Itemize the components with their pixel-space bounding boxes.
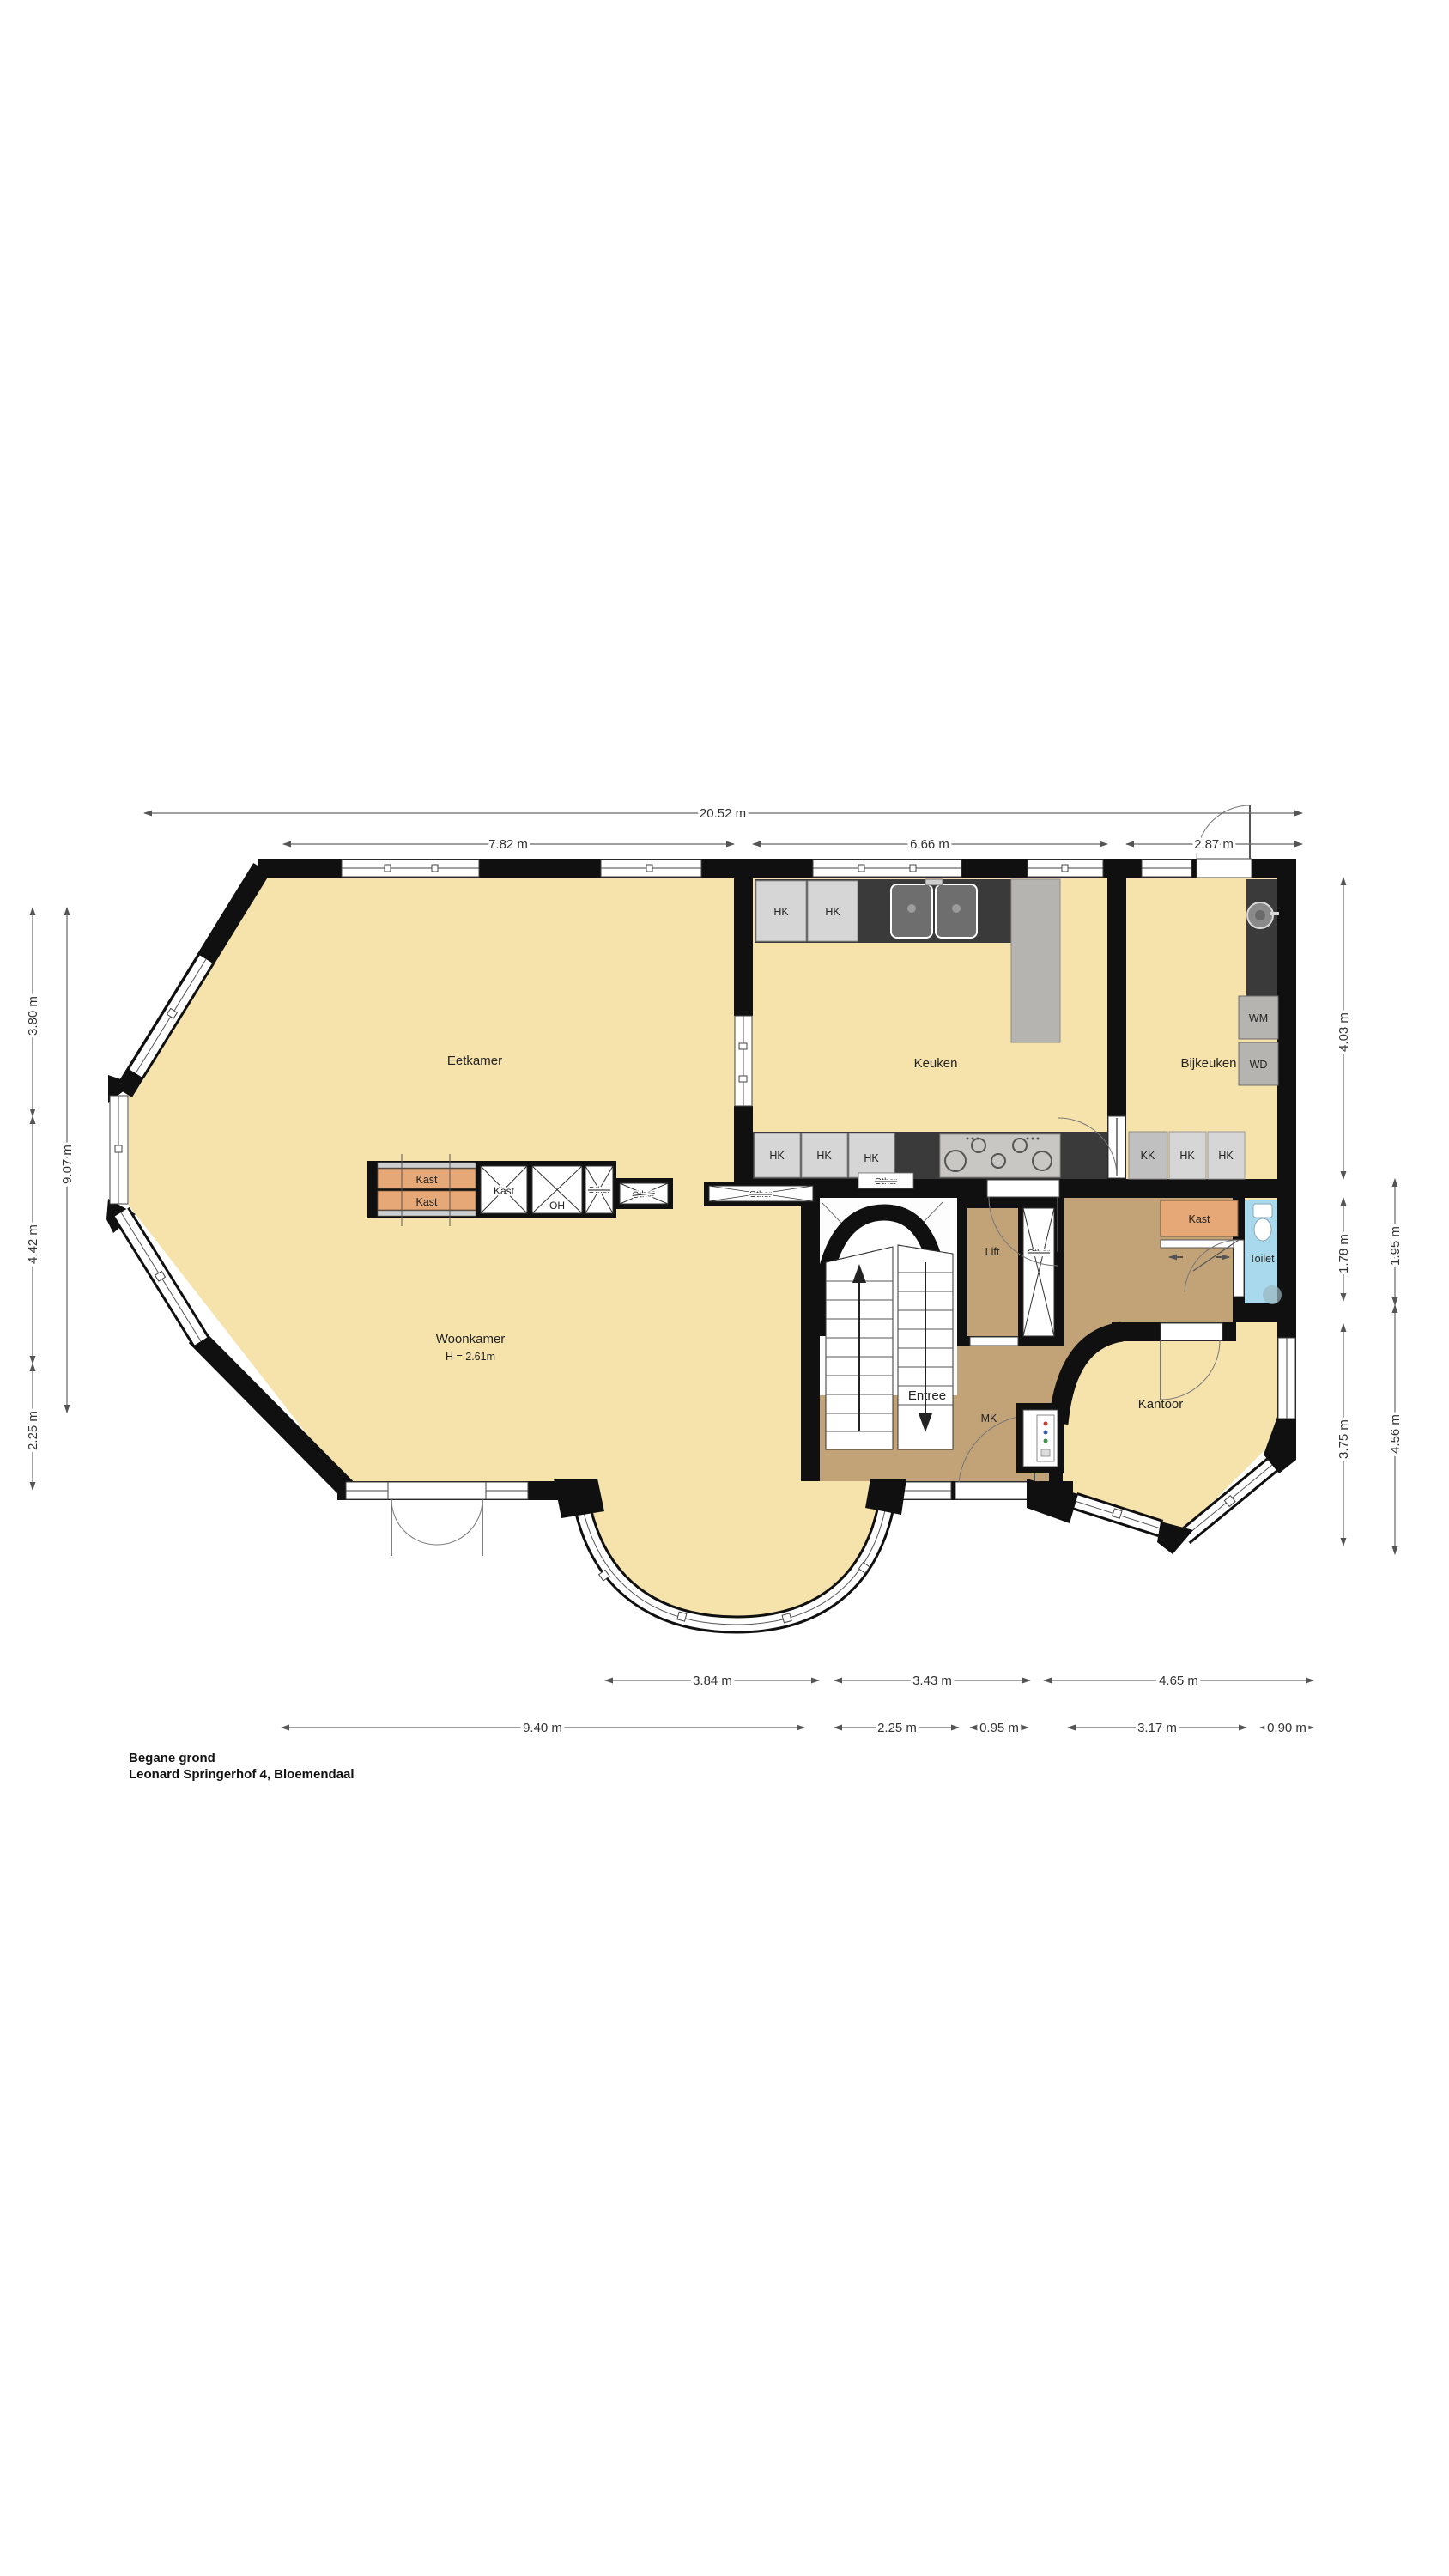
other-niche: Other — [704, 1182, 818, 1206]
wall-eetkamer-keuken-top — [734, 878, 753, 1016]
cabinet-label: KK — [1141, 1150, 1155, 1162]
floor-title: Begane grond — [129, 1750, 355, 1766]
window — [342, 860, 479, 877]
other-wall-tag: Other — [858, 1173, 913, 1188]
door-french-doors — [388, 1482, 486, 1556]
room-label-entree: Entree — [908, 1388, 946, 1403]
room-label-woonkamer-height: H = 2.61m — [446, 1351, 495, 1363]
toilet-label: Toilet — [1249, 1253, 1275, 1265]
lift-shaft-other — [1023, 1208, 1054, 1336]
wall-toilet-south — [1233, 1303, 1296, 1322]
window — [346, 1482, 388, 1499]
window — [1028, 860, 1103, 877]
window-west — [110, 1096, 128, 1204]
dim-right-1: 4.03 m — [1337, 1012, 1351, 1052]
dim-left-4: 2.25 m — [26, 1411, 40, 1450]
dim-bottom2-3: 0.95 m — [979, 1721, 1019, 1735]
lift-label: Lift — [985, 1246, 1000, 1258]
dim-top-total: 20.52 m — [700, 806, 746, 821]
dim-bottom2-4: 3.17 m — [1137, 1721, 1177, 1735]
kast-label: Kast — [415, 1196, 438, 1208]
kast-label: Kast — [1188, 1213, 1210, 1225]
cabinet-label: HK — [816, 1150, 832, 1162]
other-protrusion: Other — [615, 1178, 673, 1209]
dim-bottom1-2: 3.43 m — [912, 1674, 952, 1688]
dim-right-5: 3.75 m — [1337, 1419, 1351, 1459]
mk-closet — [1016, 1403, 1064, 1473]
oh-label: OH — [549, 1200, 565, 1212]
wm-label: WM — [1249, 1012, 1268, 1024]
title-block: Begane grond Leonard Springerhof 4, Bloe… — [129, 1750, 355, 1783]
room-label-kantoor: Kantoor — [1138, 1397, 1184, 1412]
stair-flight-down — [898, 1245, 953, 1449]
staircase — [820, 1202, 953, 1449]
window-interior-keuken — [735, 1016, 752, 1106]
cabinet-label: HK — [769, 1150, 785, 1162]
window — [486, 1482, 528, 1499]
wall-stair-west — [801, 1198, 820, 1481]
dim-bottom2-5: 0.90 m — [1267, 1721, 1307, 1735]
room-label-woonkamer: Woonkamer — [436, 1332, 506, 1346]
dim-bottom2-2: 2.25 m — [877, 1721, 917, 1735]
dim-bottom1-1: 3.84 m — [693, 1674, 732, 1688]
dim-bottom2-1: 9.40 m — [523, 1721, 562, 1735]
cabinet-label: HK — [825, 906, 840, 918]
other-cell: Other — [585, 1166, 613, 1213]
counter-east — [1246, 879, 1277, 999]
kast-cell: Kast — [481, 1166, 527, 1213]
dim-left-3: 4.42 m — [26, 1224, 40, 1264]
cabinet-label: HK — [1179, 1150, 1195, 1162]
cabinet-label: HK — [1218, 1150, 1234, 1162]
stair-flight-up — [826, 1247, 893, 1449]
dim-left-2: 9.07 m — [60, 1145, 75, 1184]
oh-cell: OH — [532, 1166, 582, 1213]
dim-top-seg1: 7.82 m — [488, 837, 528, 852]
window — [1278, 1338, 1295, 1419]
floorplan-canvas: HK HK HK HK HK — [0, 0, 1449, 2576]
room-label-bijkeuken: Bijkeuken — [1180, 1056, 1236, 1071]
toilet-fixture — [1253, 1204, 1272, 1241]
other-label: Other — [749, 1189, 773, 1200]
fridge-column — [1011, 879, 1060, 1042]
room-label-keuken: Keuken — [914, 1056, 958, 1071]
kast-label: Kast — [494, 1185, 515, 1197]
room-label-mk: MK — [981, 1413, 997, 1425]
other-label: Other — [588, 1185, 611, 1195]
dim-right-2: 1.78 m — [1337, 1234, 1351, 1273]
kast-label: Kast — [415, 1174, 438, 1186]
window — [813, 860, 961, 877]
lift: Lift Other — [967, 1208, 1054, 1346]
dim-top-seg2: 6.66 m — [910, 837, 949, 852]
dim-right-4: 4.56 m — [1388, 1414, 1403, 1454]
window — [1142, 860, 1191, 877]
room-label-eetkamer: Eetkamer — [447, 1054, 502, 1068]
dim-bottom1-3: 4.65 m — [1159, 1674, 1198, 1688]
hob — [940, 1134, 1060, 1177]
cabinet-label: HK — [773, 906, 789, 918]
wd-label: WD — [1250, 1059, 1268, 1071]
dim-right-3: 1.95 m — [1388, 1226, 1403, 1266]
dim-top-seg3: 2.87 m — [1194, 837, 1234, 852]
address-title: Leonard Springerhof 4, Bloemendaal — [129, 1766, 355, 1783]
dim-left-1: 3.80 m — [26, 996, 40, 1036]
other-label: Other — [875, 1176, 898, 1187]
cabinet-label: HK — [864, 1152, 879, 1164]
window — [601, 860, 701, 877]
other-label: Other — [1028, 1248, 1051, 1258]
